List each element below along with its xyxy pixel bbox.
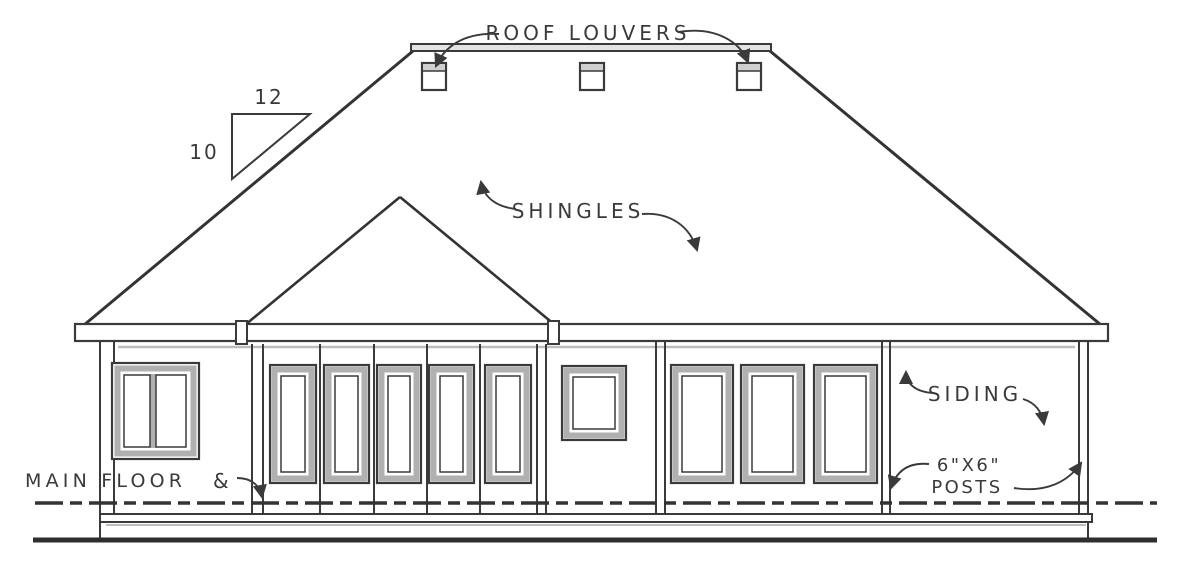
windows (112, 363, 877, 483)
main-floor-datum-symbol: & (213, 469, 229, 493)
roof-louver-icon (422, 63, 446, 90)
pitch-run-label: 12 (254, 85, 283, 109)
eave-fascia (75, 321, 1108, 347)
posts-size-label: 6"X6" (937, 455, 1001, 476)
elevation-linework: 12 10 ROOF LOUVERS SHINGLES SIDING 6"X6"… (0, 0, 1180, 573)
right-window (814, 365, 877, 483)
window-double-left (112, 363, 199, 459)
bay-left-slope (245, 197, 400, 325)
posts-leader-right (1014, 463, 1081, 489)
right-window (741, 365, 804, 483)
right-window (671, 365, 733, 483)
main-floor-leader (237, 478, 262, 497)
roof-louver-icon (580, 63, 604, 90)
roof-louvers-group (422, 63, 761, 90)
pitch-rise-label: 10 (189, 140, 218, 164)
roof-louvers-label: ROOF LOUVERS (486, 21, 691, 45)
bay-fascia-left-cap (236, 321, 247, 344)
window-small-square (562, 366, 626, 440)
ridge-cap (411, 44, 771, 51)
roof-louver-icon (737, 63, 761, 90)
posts-leader-left (891, 464, 929, 488)
bay-window (485, 365, 531, 483)
bay-window (377, 365, 421, 483)
siding-leader-right (1023, 399, 1044, 424)
base (33, 514, 1157, 540)
bay-fascia-right-cap (548, 321, 559, 344)
posts-word-label: POSTS (931, 477, 1002, 498)
roof-left-slope (84, 51, 413, 325)
bay-window (324, 365, 369, 483)
bay-roof (245, 197, 555, 325)
fascia-band (75, 324, 1108, 341)
shingles-label: SHINGLES (512, 199, 645, 223)
siding-label: SIDING (928, 382, 1022, 406)
bay-window (429, 365, 474, 483)
pitch-triangle: 12 10 (189, 85, 310, 179)
roof-right-slope (770, 51, 1101, 325)
bay-window (270, 365, 316, 483)
shingles-leader-right (642, 214, 697, 250)
rear-elevation-drawing: 12 10 ROOF LOUVERS SHINGLES SIDING 6"X6"… (0, 0, 1180, 573)
main-floor-label: MAIN FLOOR (25, 470, 186, 492)
floor-band (100, 514, 1092, 522)
